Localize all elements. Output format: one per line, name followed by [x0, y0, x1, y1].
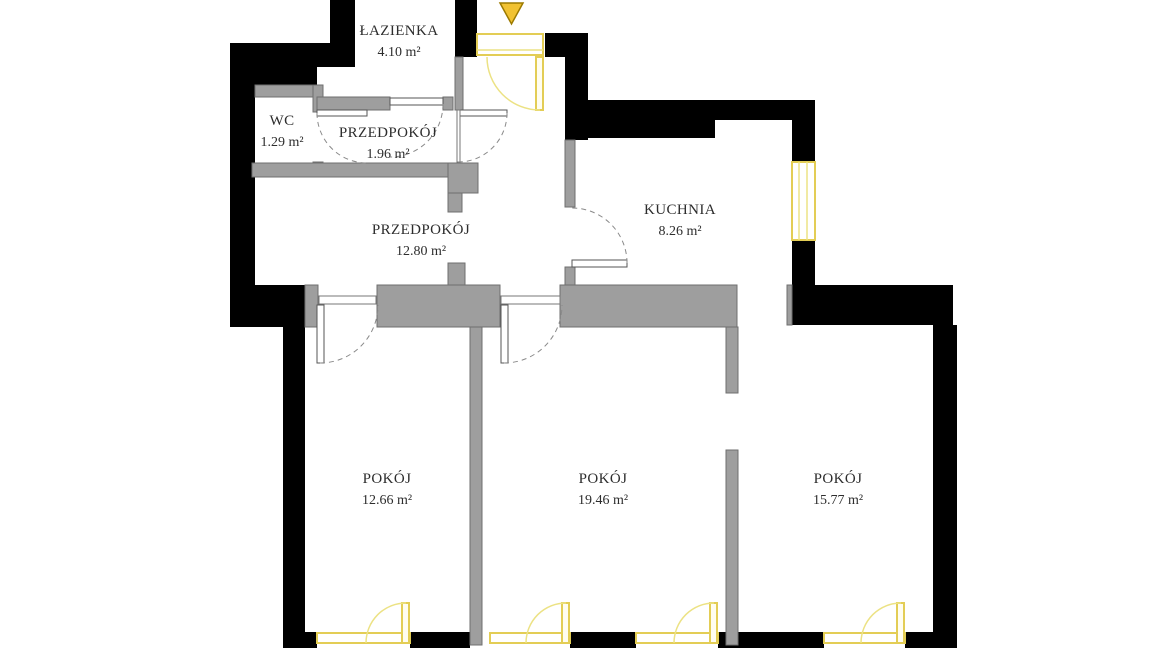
room-name: WC: [260, 110, 303, 132]
room-name: ŁAZIENKA: [359, 20, 438, 42]
room-label-pokoj-1: POKÓJ 12.66 m²: [362, 468, 412, 512]
room-label-pokoj-3: POKÓJ 15.77 m²: [813, 468, 863, 512]
room-label-wc: WC 1.29 m²: [260, 110, 303, 154]
room-label-przedpokoj-main: PRZEDPOKÓJ 12.80 m²: [372, 219, 470, 263]
walls-partition: [252, 57, 792, 645]
floor-plan: ŁAZIENKA 4.10 m² WC 1.29 m² PRZEDPOKÓJ 1…: [0, 0, 1170, 648]
room-area: 4.10 m²: [359, 42, 438, 64]
room-label-pokoj-2: POKÓJ 19.46 m²: [578, 468, 628, 512]
floor-plan-drawing: [0, 0, 1170, 648]
room-label-przedpokoj-small: PRZEDPOKÓJ 1.96 m²: [339, 122, 437, 166]
room-area: 15.77 m²: [813, 490, 863, 512]
room-name: KUCHNIA: [644, 199, 716, 221]
room-area: 12.80 m²: [372, 241, 470, 263]
room-area: 1.29 m²: [260, 132, 303, 154]
room-area: 19.46 m²: [578, 490, 628, 512]
room-name: PRZEDPOKÓJ: [372, 219, 470, 241]
room-area: 12.66 m²: [362, 490, 412, 512]
room-label-kuchnia: KUCHNIA 8.26 m²: [644, 199, 716, 243]
room-name: POKÓJ: [578, 468, 628, 490]
room-name: POKÓJ: [813, 468, 863, 490]
entrance-arrow-icon: [500, 3, 523, 24]
kitchen-window: [792, 162, 815, 240]
room-label-lazienka: ŁAZIENKA 4.10 m²: [359, 20, 438, 64]
room-area: 1.96 m²: [339, 144, 437, 166]
entrance-door: [477, 34, 543, 110]
room-name: POKÓJ: [362, 468, 412, 490]
room-name: PRZEDPOKÓJ: [339, 122, 437, 144]
room-area: 8.26 m²: [644, 221, 716, 243]
